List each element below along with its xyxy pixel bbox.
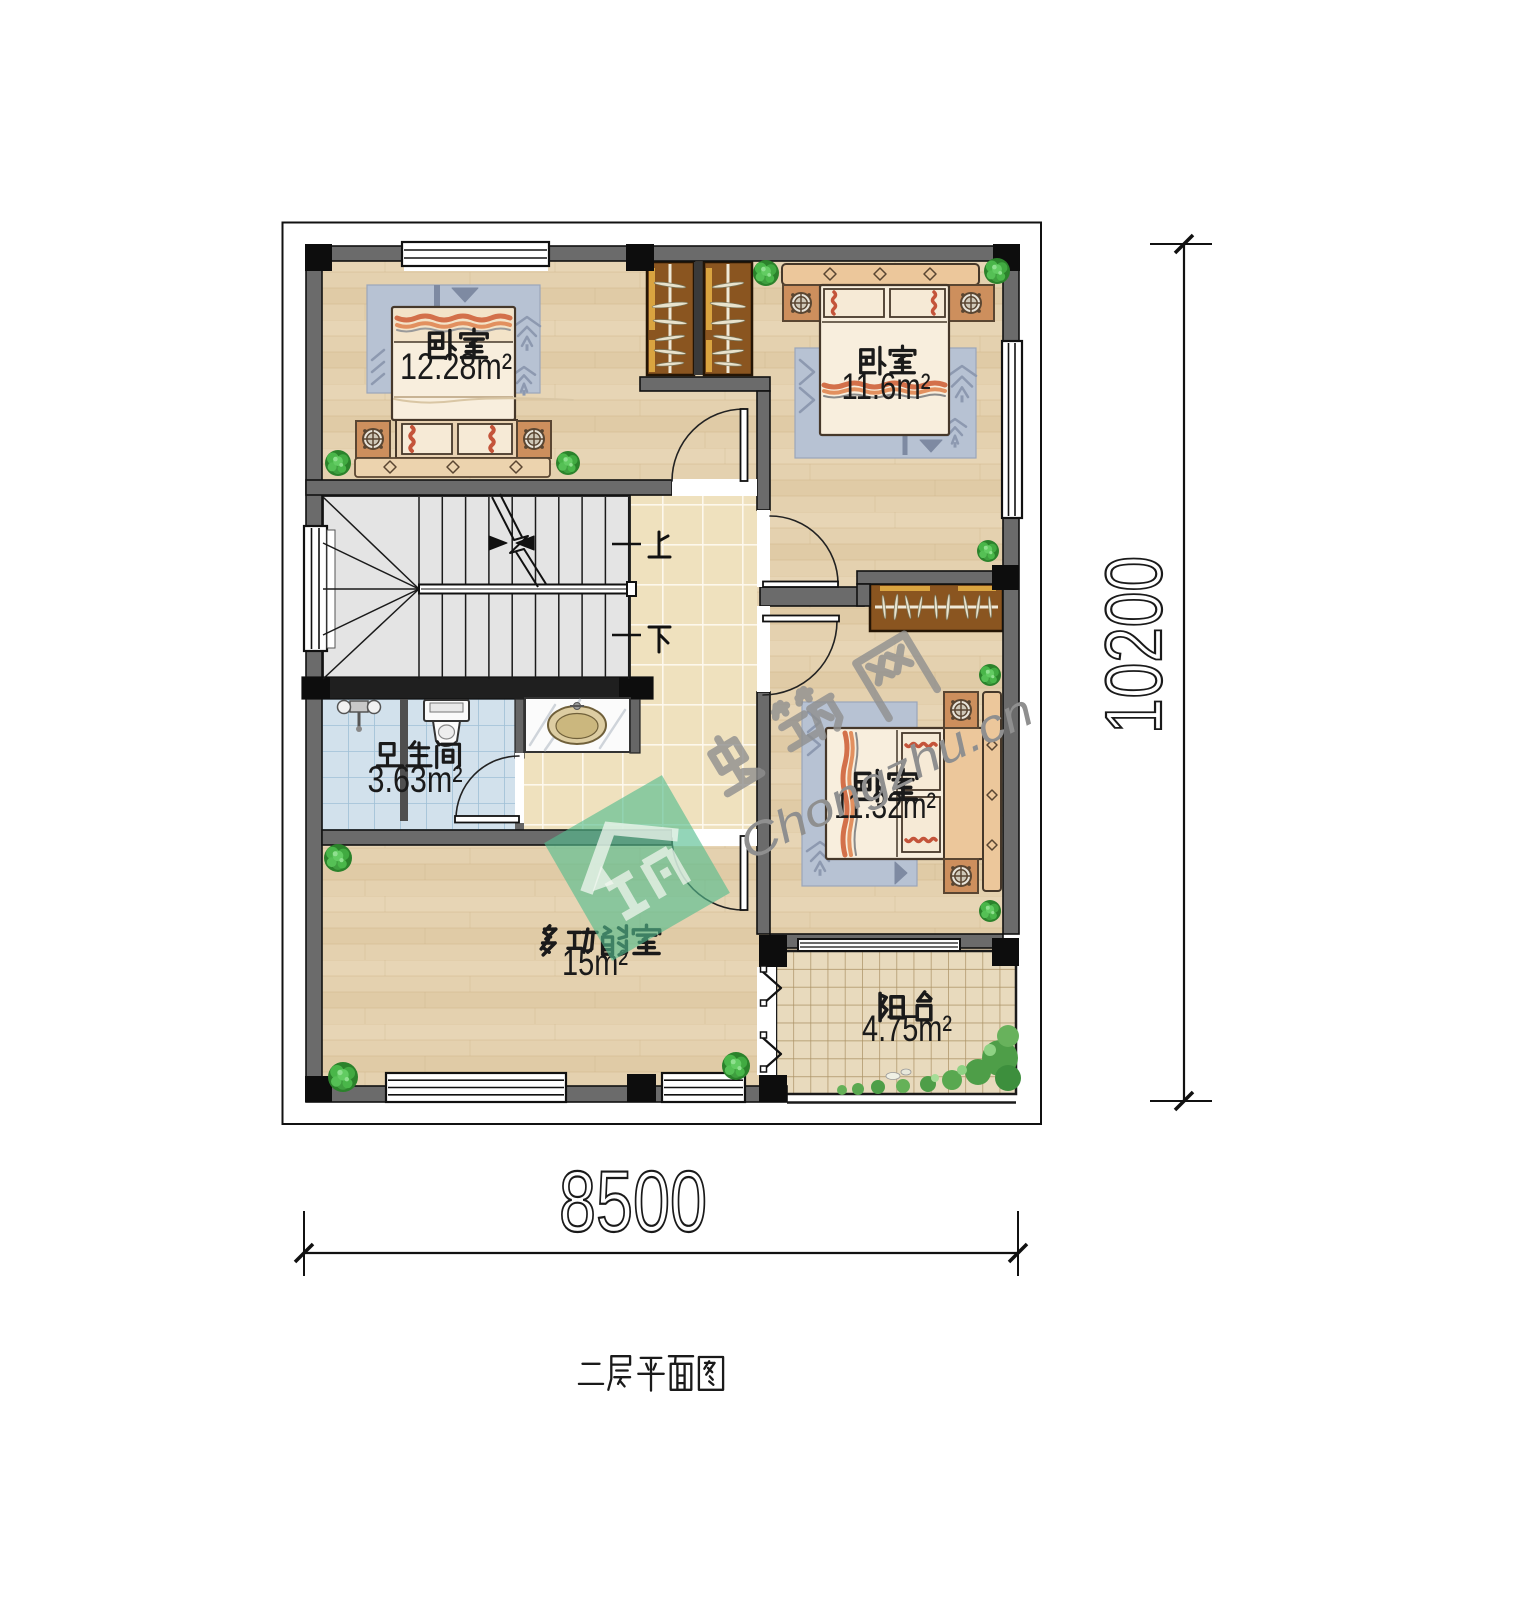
- svg-text:8500: 8500: [559, 1154, 707, 1250]
- svg-text:11.6m²: 11.6m²: [842, 366, 931, 407]
- svg-text:10200: 10200: [1089, 556, 1178, 734]
- svg-text:12.28m²: 12.28m²: [400, 346, 512, 387]
- svg-text:3.63m²: 3.63m²: [368, 759, 463, 800]
- svg-text:4.75m²: 4.75m²: [862, 1008, 952, 1049]
